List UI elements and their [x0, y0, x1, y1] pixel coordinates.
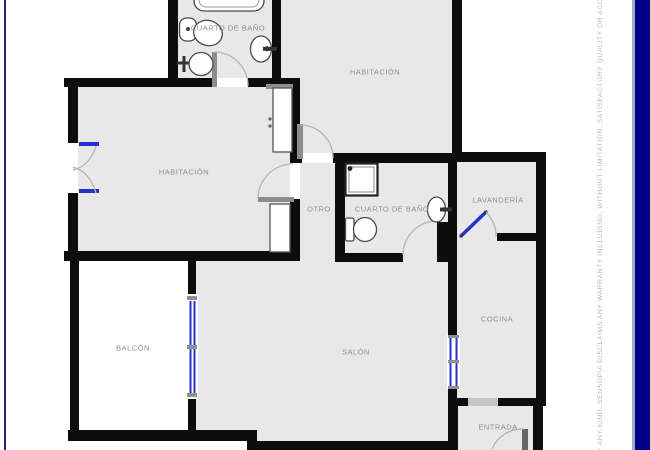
room-label-balcon: BALCÓN: [116, 344, 150, 353]
room-label-cuarto-de-bano-mid: CUARTO DE BAÑO: [355, 205, 429, 214]
room-label-salon: SALÓN: [342, 348, 370, 357]
floor-plan-page: CUARTO DE BAÑO HABITACIÓN HABITACIÓN OTR…: [0, 0, 650, 450]
page-border-right-bar: [635, 0, 650, 450]
bathtub: [194, 0, 264, 11]
room-label-otro: OTRO: [307, 205, 331, 214]
room-label-habitacion-right: HABITACIÓN: [350, 68, 400, 77]
floor-plan-drawing: [0, 0, 650, 450]
room-label-entrada: ENTRADA: [478, 423, 517, 432]
page-border-left-line: [4, 0, 6, 450]
room-floors: [78, 0, 536, 450]
room-label-cocina: COCINA: [481, 315, 513, 324]
room-label-lavanderia: LAVANDERÍA: [472, 196, 523, 205]
shower-mid-bathroom: [346, 164, 378, 196]
toilet-mid-bathroom: [346, 218, 377, 242]
room-label-habitacion-left: HABITACIÓN: [159, 168, 209, 177]
disclaimer-watermark: F ANY KIND. SENSOPIA DISCLAIMS ANY WARRA…: [597, 0, 604, 450]
room-label-cuarto-de-bano-top: CUARTO DE BAÑO: [191, 24, 265, 33]
